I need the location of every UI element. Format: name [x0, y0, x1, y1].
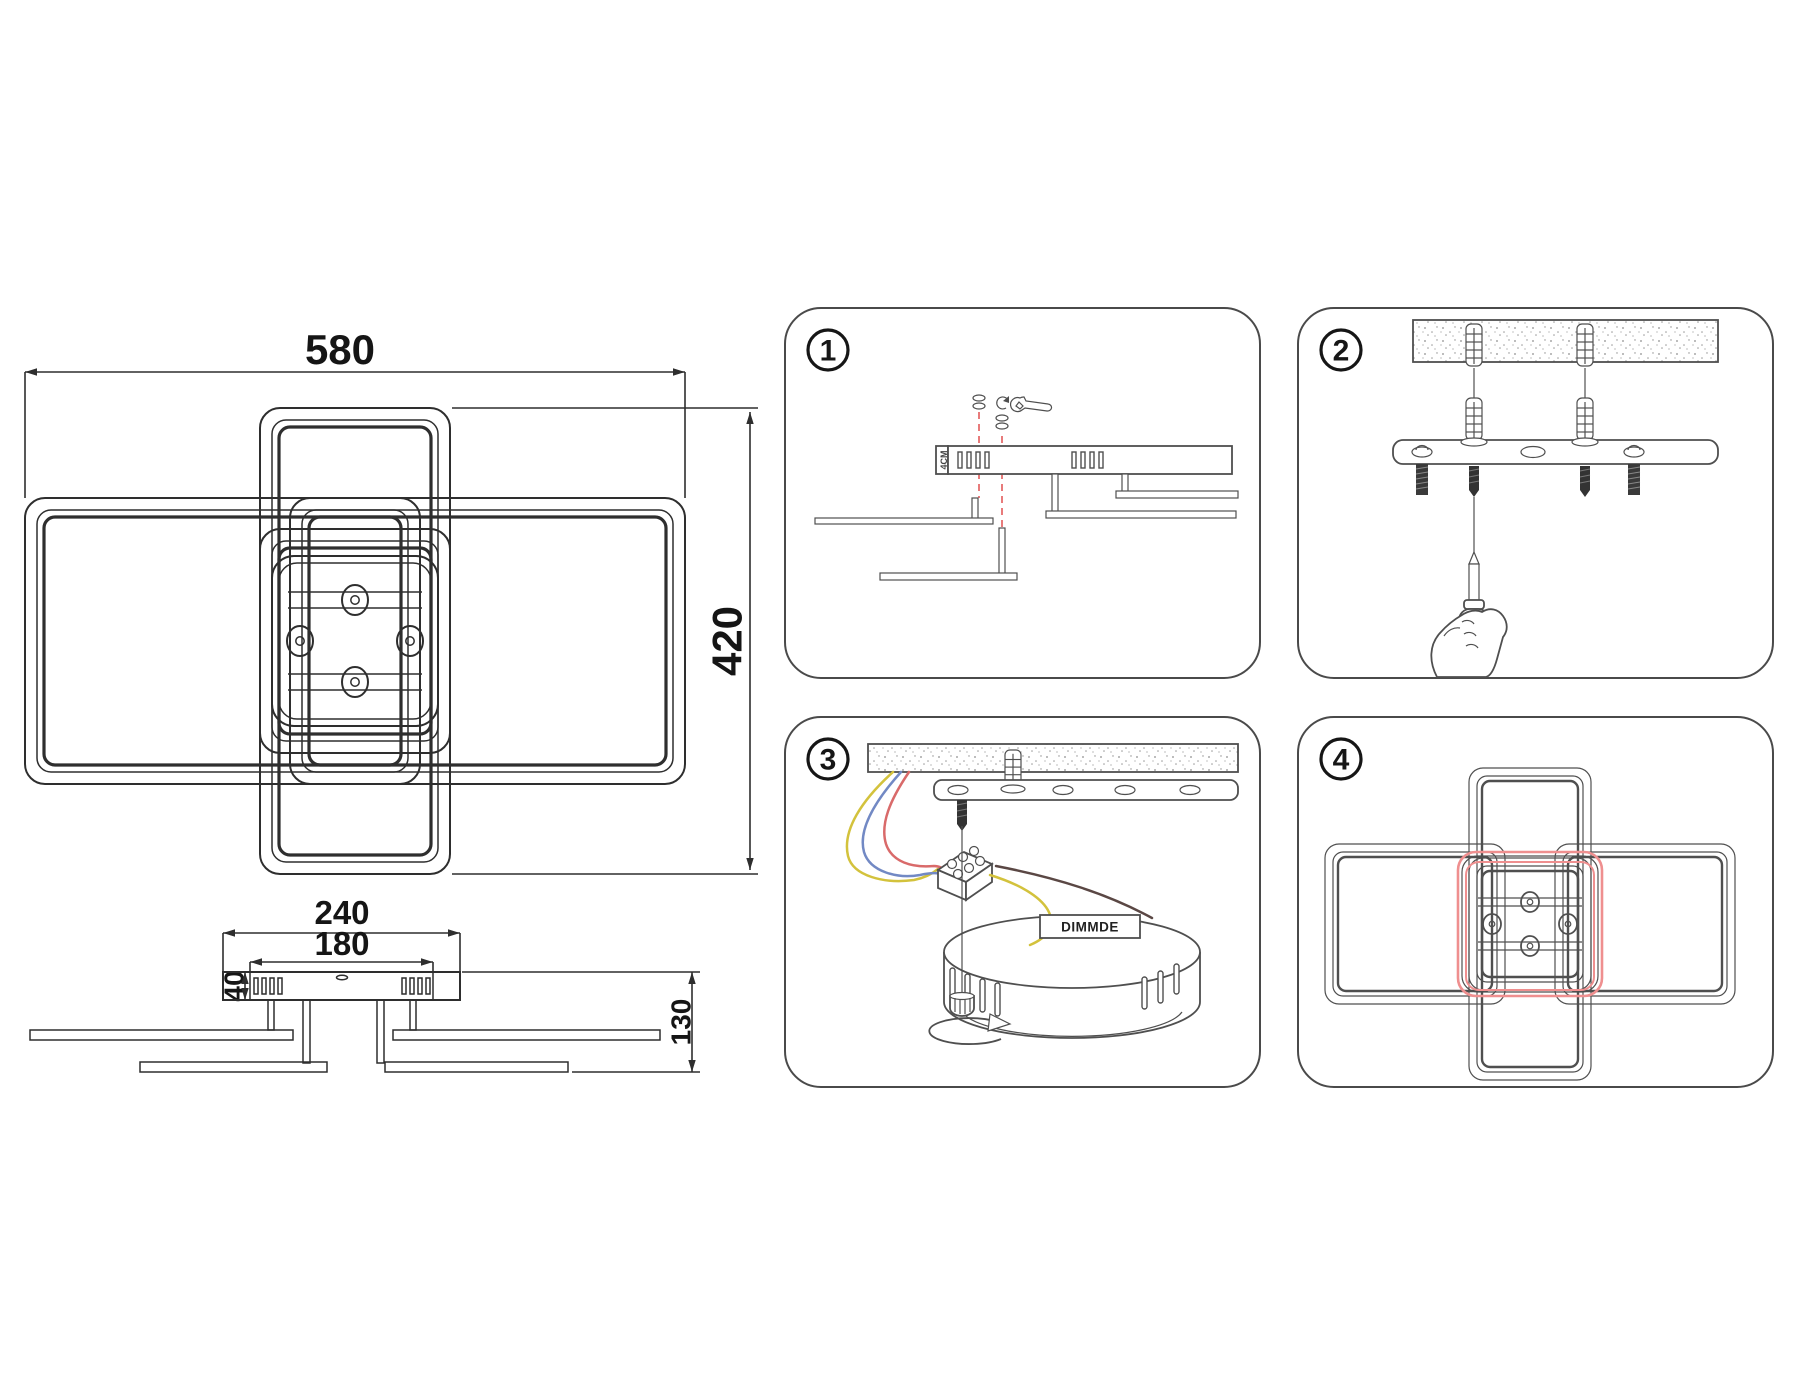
canopy-plate-top-view [272, 556, 438, 726]
step-2-illustration [1393, 320, 1718, 677]
dim-420-label: 420 [704, 606, 751, 676]
driver-label-text: DIMMDE [1061, 920, 1119, 935]
screw-icon [1469, 466, 1479, 497]
step-2-badge: 2 [1321, 330, 1361, 370]
dimension-width-580: 580 [25, 326, 685, 498]
wall-plug-icon [1466, 398, 1482, 440]
frame-bottom [260, 529, 450, 874]
diagram-svg: 580 420 [0, 0, 1800, 1400]
step-3-number: 3 [820, 744, 837, 777]
step-1-number: 1 [820, 335, 837, 368]
dim-180-label: 180 [314, 925, 369, 962]
end-cap-label: 4CM [939, 450, 949, 469]
screw-boss-top [1521, 892, 1539, 912]
rotate-icon [997, 396, 1009, 409]
hand-icon [1431, 609, 1506, 677]
threaded-stud-icon [1628, 464, 1640, 495]
mounting-bracket [934, 780, 1238, 800]
step-4-panel [1298, 717, 1773, 1087]
screw-boss-bottom [1521, 936, 1539, 956]
step-1-illustration: 4CM [815, 395, 1238, 580]
step-3-badge: 3 [808, 739, 848, 779]
dimension-height-420: 420 [452, 408, 758, 874]
red-highlight [1458, 852, 1602, 996]
frame-right-small [1555, 844, 1735, 1004]
side-view-drawing: 240 180 40 130 [30, 894, 700, 1072]
instruction-sheet: 580 420 [0, 0, 1800, 1400]
driver-label: DIMMDE [1040, 915, 1140, 938]
step-4-number: 4 [1333, 744, 1350, 777]
screw-boss-bottom [342, 667, 368, 697]
nut-icon [973, 395, 985, 409]
step-3-illustration: DIMMDE [847, 744, 1238, 1044]
terminal-block [938, 847, 992, 901]
ceiling [868, 744, 1238, 772]
frame-top [260, 408, 450, 753]
frame-arms-exploded [815, 474, 1238, 580]
fixture-arms-side-view [30, 1000, 660, 1072]
step-4-illustration [1325, 768, 1735, 1080]
step-2-number: 2 [1333, 335, 1350, 368]
step-2-panel [1298, 308, 1773, 678]
wall-plug-icon [1577, 398, 1593, 440]
frame-left-small [1325, 844, 1505, 1004]
canopy-box-side-view [223, 972, 460, 1000]
driver-box: 4CM [936, 446, 1232, 474]
screw-boss-top [342, 585, 368, 615]
threaded-stud-icon [1416, 464, 1428, 495]
wrench-icon [1011, 397, 1052, 412]
dimension-box-180: 180 [250, 925, 433, 972]
nut-icon [996, 415, 1008, 429]
screw-icon [1580, 466, 1590, 497]
step-1-badge: 1 [808, 330, 848, 370]
mounting-bracket [1393, 438, 1718, 464]
top-view-drawing: 580 420 [25, 326, 758, 874]
decorative-nut [950, 993, 974, 1017]
dim-580-label: 580 [305, 326, 375, 373]
ceiling [1413, 320, 1718, 362]
step-4-badge: 4 [1321, 739, 1361, 779]
dimension-height-130: 130 [462, 972, 700, 1072]
